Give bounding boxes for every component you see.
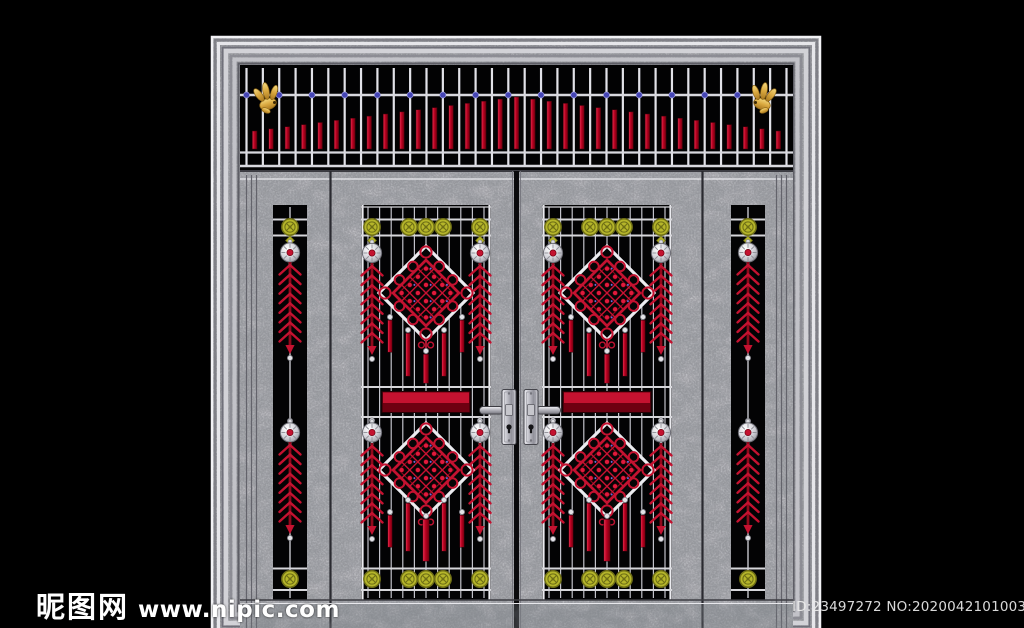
flower-medallion (653, 219, 669, 235)
lock-rail (382, 392, 470, 413)
flower-medallion (582, 571, 598, 587)
left-door-leaf (361, 205, 491, 600)
flower-medallion (472, 219, 488, 235)
flower-medallion (401, 219, 417, 235)
flower-medallion (435, 571, 451, 587)
tassel-ornament (459, 509, 464, 547)
tassel-ornament (568, 509, 573, 547)
flower-medallion (582, 219, 598, 235)
tassel-ornament (405, 497, 410, 551)
tassel-ornament (640, 314, 645, 352)
flower-medallion (599, 571, 615, 587)
flower-medallion (435, 219, 451, 235)
flower-medallion (616, 571, 632, 587)
tassel-ornament (586, 497, 591, 551)
nipic-watermark: 昵图网 www.nipic.com (36, 584, 340, 626)
flower-medallion (545, 219, 561, 235)
tassel-ornament (441, 497, 446, 551)
right-side-panel (731, 205, 765, 600)
tassel-ornament (568, 314, 573, 352)
tassel-ornament (387, 509, 392, 547)
lock-rail (563, 392, 651, 413)
nipic-logo-text: 昵图网 (36, 584, 129, 626)
flower-medallion (418, 571, 434, 587)
tassel-ornament (459, 314, 464, 352)
flower-medallion (545, 571, 561, 587)
tassel-ornament (604, 513, 610, 561)
tassel-ornament (423, 513, 429, 561)
tassel-ornament (387, 314, 392, 352)
flower-medallion (364, 571, 380, 587)
nipic-url-text: www.nipic.com (138, 597, 340, 623)
door-design-artwork (0, 0, 1024, 628)
tassel-ornament (586, 327, 591, 376)
image-id-watermark: ID:23497272 NO:20200421010039240086 (792, 599, 1024, 615)
tassel-ornament (441, 327, 446, 376)
tassel-ornament (640, 509, 645, 547)
flower-medallion (740, 219, 756, 235)
flower-medallion (599, 219, 615, 235)
transom-grille (240, 65, 793, 170)
left-side-panel (273, 205, 307, 600)
flower-medallion (740, 571, 756, 587)
flower-medallion (616, 219, 632, 235)
flower-medallion (472, 571, 488, 587)
tassel-ornament (622, 327, 627, 376)
flower-medallion (401, 571, 417, 587)
flower-medallion (364, 219, 380, 235)
flower-medallion (282, 219, 298, 235)
tassel-ornament (405, 327, 410, 376)
flower-medallion (418, 219, 434, 235)
tassel-ornament (622, 497, 627, 551)
flower-medallion (653, 571, 669, 587)
stock-image-canvas: 昵图网 www.nipic.com ID:23497272 NO:2020042… (0, 0, 1024, 628)
right-door-leaf (542, 205, 672, 600)
